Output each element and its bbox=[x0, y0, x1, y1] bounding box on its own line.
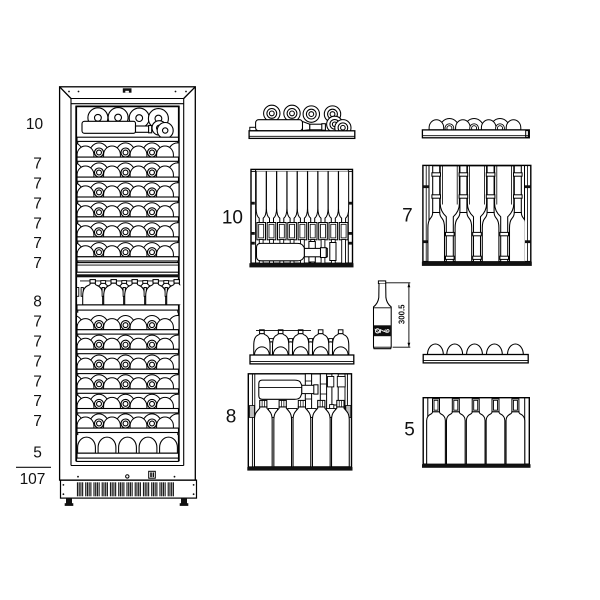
svg-text:7: 7 bbox=[33, 373, 42, 390]
svg-text:8: 8 bbox=[33, 294, 42, 311]
svg-text:7: 7 bbox=[33, 393, 42, 410]
svg-text:7: 7 bbox=[33, 334, 42, 351]
svg-text:7: 7 bbox=[33, 353, 42, 370]
svg-text:5: 5 bbox=[33, 444, 42, 461]
svg-text:6: 6 bbox=[382, 329, 391, 333]
svg-text:7: 7 bbox=[33, 215, 42, 232]
svg-text:7: 7 bbox=[33, 255, 42, 272]
svg-text:7: 7 bbox=[33, 314, 42, 331]
svg-text:107: 107 bbox=[20, 471, 46, 488]
svg-text:7: 7 bbox=[33, 176, 42, 193]
svg-text:7: 7 bbox=[33, 235, 42, 252]
svg-text:10: 10 bbox=[222, 207, 243, 228]
svg-text:7: 7 bbox=[33, 195, 42, 212]
svg-text:300.5: 300.5 bbox=[397, 304, 406, 324]
svg-text:5: 5 bbox=[404, 420, 415, 441]
svg-text:10: 10 bbox=[26, 116, 44, 133]
svg-text:8: 8 bbox=[226, 407, 237, 428]
svg-text:7: 7 bbox=[33, 156, 42, 173]
svg-text:7: 7 bbox=[402, 205, 413, 226]
svg-text:7: 7 bbox=[33, 413, 42, 430]
